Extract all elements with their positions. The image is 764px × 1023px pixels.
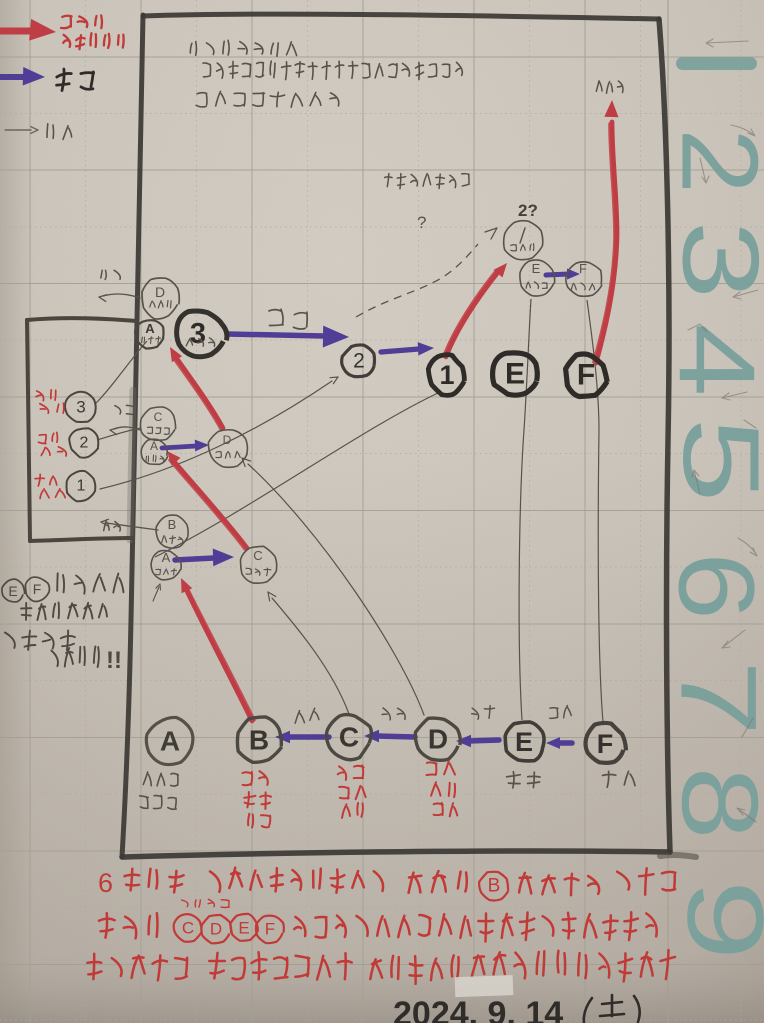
svg-text:A: A	[145, 321, 155, 336]
svg-text:D: D	[223, 433, 232, 447]
svg-text:2: 2	[658, 128, 764, 194]
svg-text:E: E	[515, 727, 533, 757]
svg-text:C: C	[182, 919, 194, 938]
svg-text:E: E	[8, 583, 17, 599]
svg-text:F: F	[597, 729, 614, 759]
svg-text:9: 9	[665, 880, 764, 961]
svg-text:6: 6	[656, 552, 764, 620]
svg-text:4: 4	[656, 323, 764, 396]
svg-text:6: 6	[98, 868, 113, 898]
svg-text:1: 1	[77, 478, 86, 495]
svg-text:D: D	[155, 284, 165, 300]
svg-text:A: A	[162, 550, 171, 565]
svg-text:F: F	[265, 920, 275, 939]
svg-text:2024. 9. 14: 2024. 9. 14	[393, 995, 563, 1023]
svg-text:B: B	[168, 517, 177, 532]
svg-text:E: E	[238, 919, 249, 938]
svg-text:2: 2	[80, 435, 89, 452]
svg-text:5: 5	[661, 417, 764, 503]
svg-text:F: F	[577, 359, 595, 392]
svg-text:3: 3	[76, 398, 85, 417]
svg-text:7: 7	[658, 660, 764, 736]
svg-text:2?: 2?	[518, 201, 538, 220]
svg-text:C: C	[339, 722, 359, 753]
svg-text:?: ?	[417, 213, 426, 232]
svg-text:1: 1	[439, 360, 454, 390]
svg-text:F: F	[33, 581, 42, 597]
svg-text:D: D	[210, 920, 222, 939]
svg-text:C: C	[154, 410, 163, 424]
svg-text:E: E	[532, 261, 541, 276]
svg-text:8: 8	[659, 766, 764, 839]
svg-text:A: A	[160, 726, 180, 757]
svg-text:F: F	[579, 261, 587, 276]
svg-text:E: E	[505, 358, 525, 391]
svg-text:!!: !!	[106, 647, 122, 674]
svg-text:3: 3	[660, 221, 764, 299]
svg-text:A: A	[150, 439, 158, 453]
svg-text:B: B	[249, 725, 269, 756]
svg-text:B: B	[488, 876, 501, 897]
svg-text:D: D	[428, 724, 448, 755]
svg-text:2: 2	[353, 350, 365, 373]
svg-text:C: C	[253, 548, 262, 563]
